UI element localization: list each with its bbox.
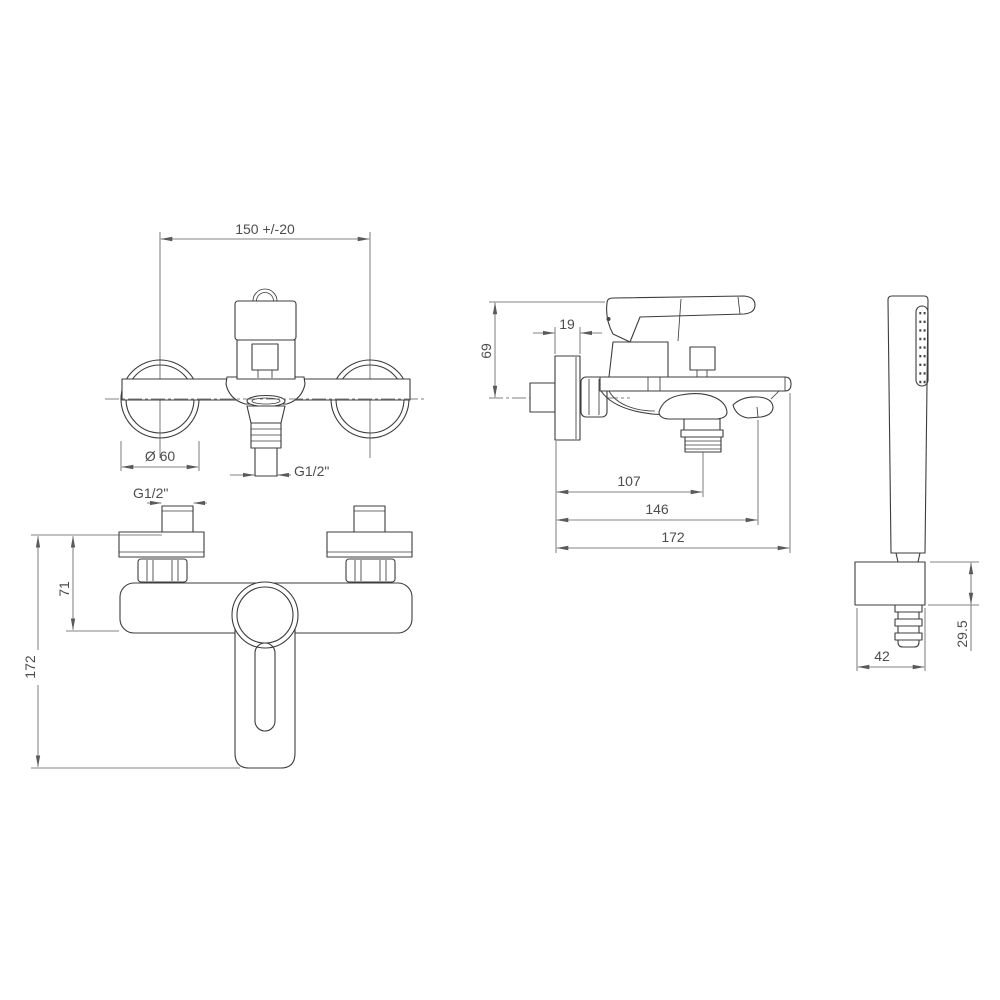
wall-bracket	[855, 562, 925, 605]
flange-plate-left	[119, 532, 204, 557]
hand-shower-view: 42 29.5	[855, 296, 979, 671]
dimension-bracket-height: 29.5	[928, 562, 979, 651]
dimension-total-depth: 172	[22, 536, 240, 768]
hose-connector	[895, 605, 922, 647]
dim-label-flange-diameter: Ø 60	[145, 448, 176, 464]
inlet-connector-right	[354, 506, 385, 534]
diverter-knob-side	[690, 347, 715, 377]
eccentric-connector	[530, 383, 555, 412]
drawing-canvas: 150 +/-20 Ø 60 G1/2"	[0, 0, 1000, 1000]
shower-hose-outlet	[733, 391, 779, 418]
bottom-view: G1/2" 71 172	[22, 485, 412, 768]
dim-label-spout-thread: G1/2"	[294, 463, 329, 479]
dimension-spout-reach: 107	[557, 473, 702, 492]
spout-outlet-front	[247, 396, 285, 477]
dim-label-flange-thickness: 19	[559, 316, 575, 332]
dimension-hole-distance: 150 +/-20	[161, 221, 369, 239]
cartridge-side	[609, 342, 668, 377]
union-nut-left	[138, 559, 187, 582]
dim-label-bracket-width: 42	[874, 648, 890, 664]
dimension-shower-outlet-reach: 146	[557, 501, 757, 520]
mixer-body-side	[600, 377, 791, 391]
wall-flange-side	[555, 356, 580, 440]
dim-label-total-reach: 172	[661, 529, 685, 545]
handle-base-outer	[232, 582, 298, 648]
union-nut-right	[346, 559, 395, 582]
handle-collar	[896, 553, 920, 562]
inlet-connector-left	[162, 506, 193, 534]
side-view: 19 69 107 146 172	[478, 296, 791, 553]
dim-label-shower-outlet-reach: 146	[645, 501, 669, 517]
dim-label-hole-distance: 150 +/-20	[235, 221, 295, 237]
flange-plate-right	[327, 532, 412, 557]
lever-handle-side	[607, 296, 756, 342]
spout-side	[601, 391, 727, 452]
dimension-spout-thread: G1/2"	[230, 463, 329, 479]
dim-label-spout-reach: 107	[617, 473, 641, 489]
technical-drawing-page: 150 +/-20 Ø 60 G1/2"	[0, 0, 1000, 1000]
lever-cap	[235, 289, 296, 340]
dimension-flange-thickness: 19	[533, 316, 602, 354]
dim-label-body-depth: 71	[56, 581, 72, 597]
dimension-total-reach: 172	[557, 529, 789, 548]
lever-handle-bottom	[235, 629, 295, 768]
set-screw	[607, 317, 611, 321]
dim-label-lever-height: 69	[478, 343, 494, 359]
dimension-inlet-thread: G1/2"	[133, 485, 207, 503]
dim-label-inlet-thread: G1/2"	[133, 485, 168, 501]
front-view: 150 +/-20 Ø 60 G1/2"	[105, 221, 425, 479]
hand-shower-handle	[888, 296, 928, 553]
dim-label-total-depth: 172	[22, 655, 38, 679]
dim-label-bracket-height: 29.5	[954, 620, 970, 647]
